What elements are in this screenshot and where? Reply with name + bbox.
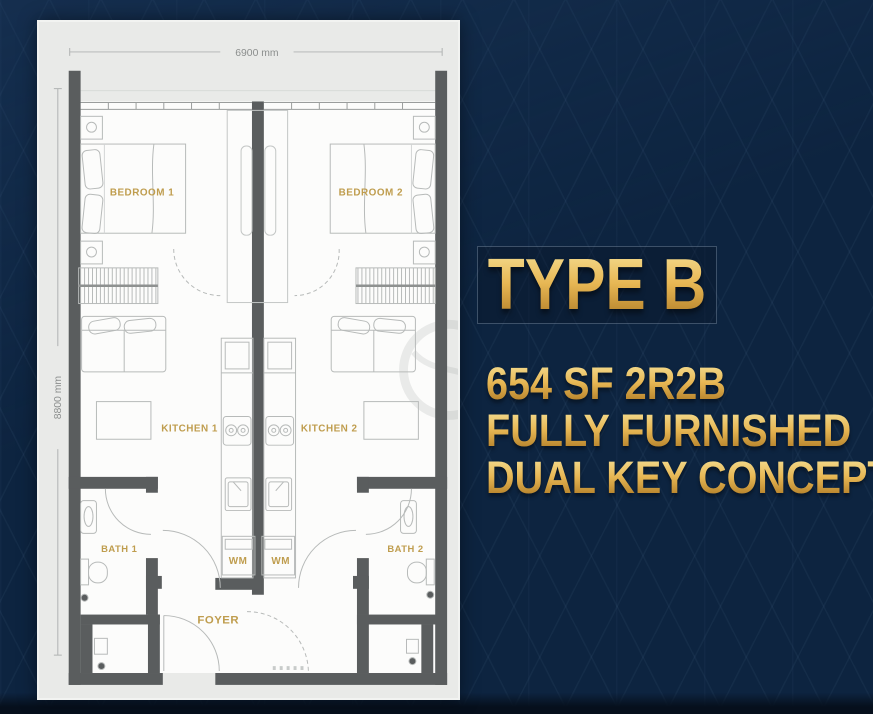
kitchen1-label: KITCHEN 1 [161,423,218,434]
type-label-box: TYPE B [477,246,717,324]
wm2-label: WM [271,556,290,567]
floor-plan-panel: 6900 mm 8800 mm [37,20,460,700]
kitchen2-label: KITCHEN 2 [301,423,358,434]
dimension-height-label: 8800 mm [53,376,64,419]
type-label: TYPE B [488,244,706,326]
bedroom2-label: BEDROOM 2 [339,188,403,199]
spec-concept-line: DUAL KEY CONCEPT [486,454,873,501]
spec-furnished-line: FULLY FURNISHED [486,407,873,454]
wm1-label: WM [229,556,248,567]
bedroom1-label: BEDROOM 1 [110,188,174,199]
floor-plan-drawing: 6900 mm 8800 mm [39,22,458,698]
bath2-label: BATH 2 [387,543,423,554]
spec-area-line: 654 SF 2R2B [486,360,873,407]
dimension-width-label: 6900 mm [235,48,278,59]
spec-lines: 654 SF 2R2B FULLY FURNISHED DUAL KEY CON… [486,360,873,501]
bath1-label: BATH 1 [101,543,137,554]
foyer-label: FOYER [197,614,239,626]
